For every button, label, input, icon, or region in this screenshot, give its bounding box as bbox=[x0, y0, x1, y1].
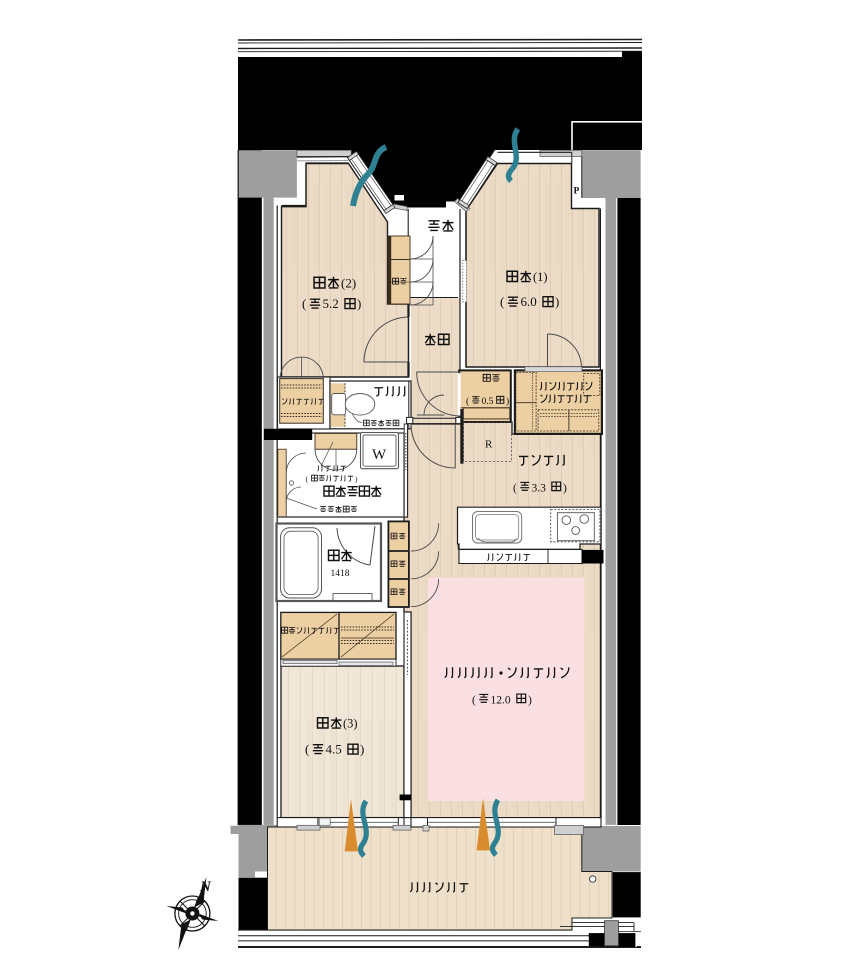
svg-text:): ) bbox=[357, 296, 361, 311]
svg-text:3.3: 3.3 bbox=[532, 483, 547, 495]
svg-text:W: W bbox=[372, 447, 387, 463]
svg-text:(: ( bbox=[305, 742, 309, 757]
svg-text:): ) bbox=[555, 294, 559, 309]
svg-text:(: ( bbox=[513, 483, 517, 495]
svg-text:12.0: 12.0 bbox=[491, 695, 511, 707]
svg-text:): ) bbox=[360, 742, 364, 757]
svg-text:(: ( bbox=[466, 396, 469, 407]
svg-text:(: ( bbox=[500, 294, 504, 309]
svg-text:): ) bbox=[528, 695, 532, 707]
svg-text:6.0: 6.0 bbox=[521, 294, 537, 309]
svg-text:4.5: 4.5 bbox=[326, 742, 342, 757]
svg-text:5.2: 5.2 bbox=[323, 296, 339, 311]
svg-text:1418: 1418 bbox=[331, 569, 350, 579]
svg-text:R: R bbox=[485, 439, 493, 451]
svg-text:(1): (1) bbox=[533, 270, 548, 284]
svg-text:N: N bbox=[199, 879, 212, 895]
svg-text:): ) bbox=[563, 483, 567, 495]
svg-text:(2): (2) bbox=[341, 276, 356, 291]
svg-text:P: P bbox=[574, 187, 580, 197]
svg-text:(3): (3) bbox=[343, 717, 358, 731]
svg-text:): ) bbox=[506, 396, 509, 407]
svg-text:(: ( bbox=[472, 695, 476, 707]
svg-text:(: ( bbox=[302, 296, 306, 311]
svg-text:0.5: 0.5 bbox=[482, 397, 494, 407]
